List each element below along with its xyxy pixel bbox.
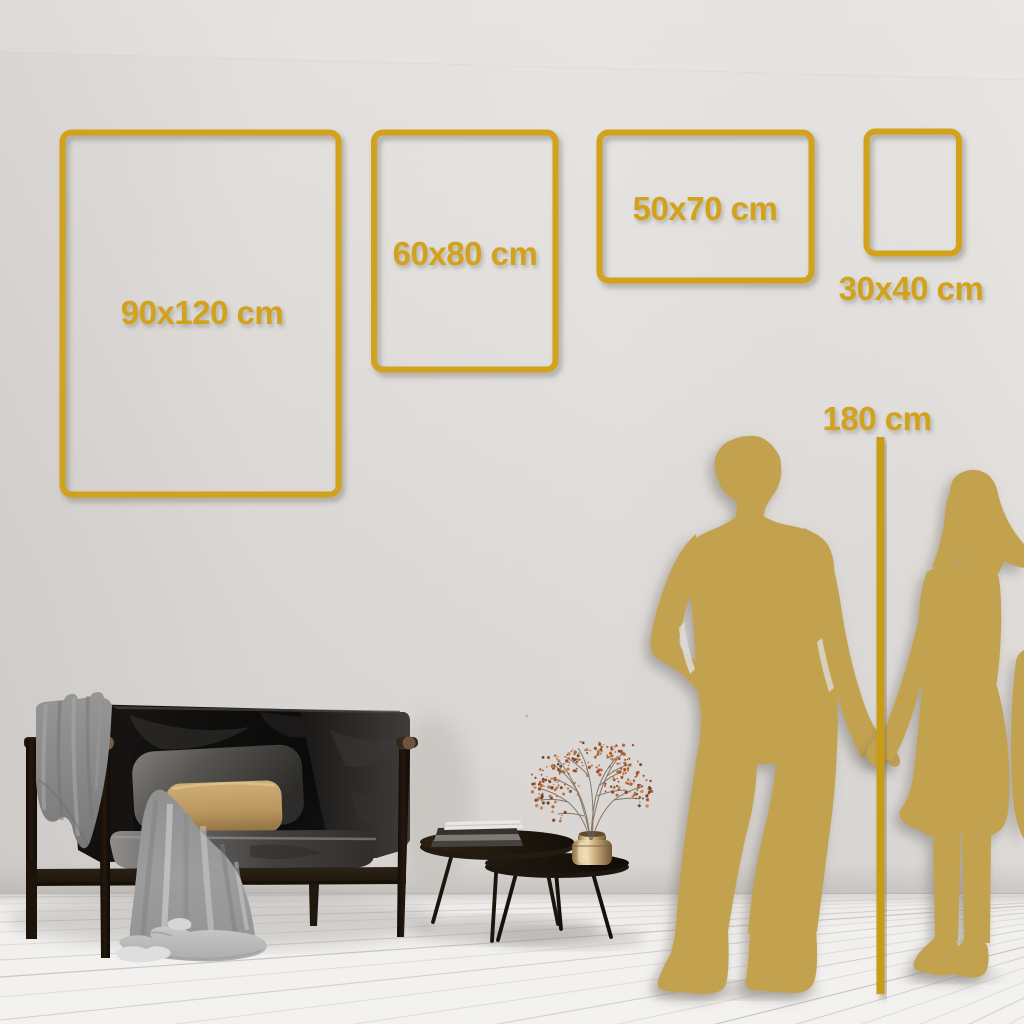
svg-text:180 cm: 180 cm <box>823 400 932 437</box>
svg-text:60x80 cm: 60x80 cm <box>393 235 538 272</box>
svg-text:30x40 cm: 30x40 cm <box>839 270 984 307</box>
svg-text:50x70 cm: 50x70 cm <box>633 190 778 227</box>
svg-text:90x120 cm: 90x120 cm <box>121 294 283 331</box>
